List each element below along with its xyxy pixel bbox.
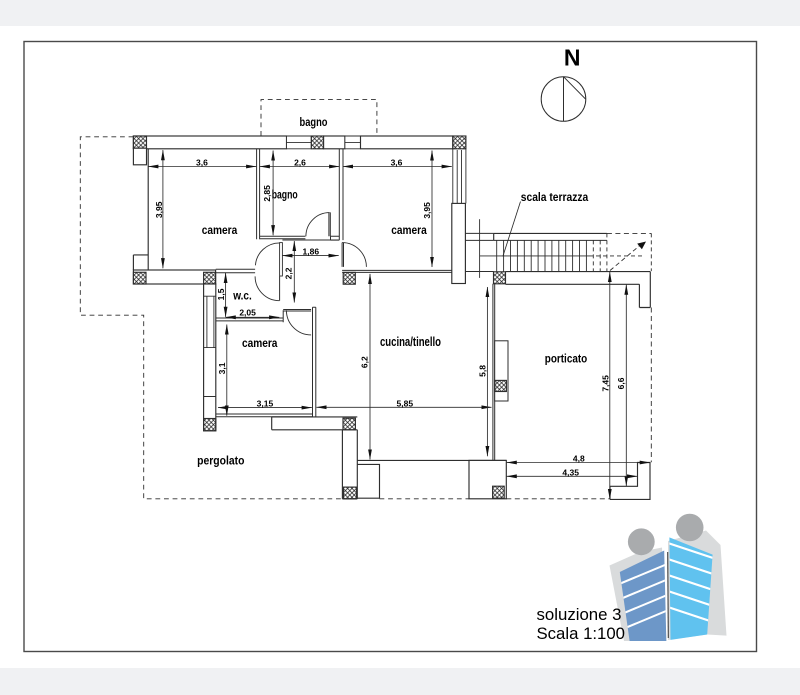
svg-text:3,95: 3,95 xyxy=(422,202,432,219)
svg-text:4,8: 4,8 xyxy=(573,454,585,464)
svg-text:porticato: porticato xyxy=(545,352,588,366)
svg-text:7,45: 7,45 xyxy=(600,375,610,392)
svg-text:3,1: 3,1 xyxy=(217,362,227,374)
svg-text:3,6: 3,6 xyxy=(391,158,403,168)
svg-text:3,15: 3,15 xyxy=(257,398,274,408)
svg-text:1,86: 1,86 xyxy=(303,246,320,256)
svg-text:4,35: 4,35 xyxy=(562,468,579,478)
svg-text:w.c.: w.c. xyxy=(232,289,251,303)
svg-text:6,2: 6,2 xyxy=(360,356,370,368)
svg-text:bagno: bagno xyxy=(300,115,328,129)
svg-text:camera: camera xyxy=(202,223,238,237)
svg-text:soluzione 3: soluzione 3 xyxy=(537,605,622,624)
svg-text:camera: camera xyxy=(391,223,427,237)
svg-text:scala terrazza: scala terrazza xyxy=(521,192,589,204)
svg-text:2,6: 2,6 xyxy=(294,158,306,168)
svg-text:6,6: 6,6 xyxy=(616,377,626,389)
svg-text:3,6: 3,6 xyxy=(196,158,208,168)
svg-text:bagno: bagno xyxy=(272,188,298,202)
svg-text:cucina/tinello: cucina/tinello xyxy=(380,335,441,349)
svg-text:camera: camera xyxy=(242,336,278,350)
svg-text:pergolato: pergolato xyxy=(197,453,244,467)
svg-text:1,5: 1,5 xyxy=(216,288,226,300)
svg-text:2,2: 2,2 xyxy=(284,267,294,279)
svg-text:5,85: 5,85 xyxy=(397,399,414,409)
svg-text:5,8: 5,8 xyxy=(477,365,487,377)
svg-text:Scala 1:100: Scala 1:100 xyxy=(537,624,626,643)
svg-text:2,05: 2,05 xyxy=(239,308,256,318)
svg-text:N: N xyxy=(564,45,581,71)
svg-text:2,85: 2,85 xyxy=(262,185,272,202)
svg-text:3,95: 3,95 xyxy=(154,201,164,218)
